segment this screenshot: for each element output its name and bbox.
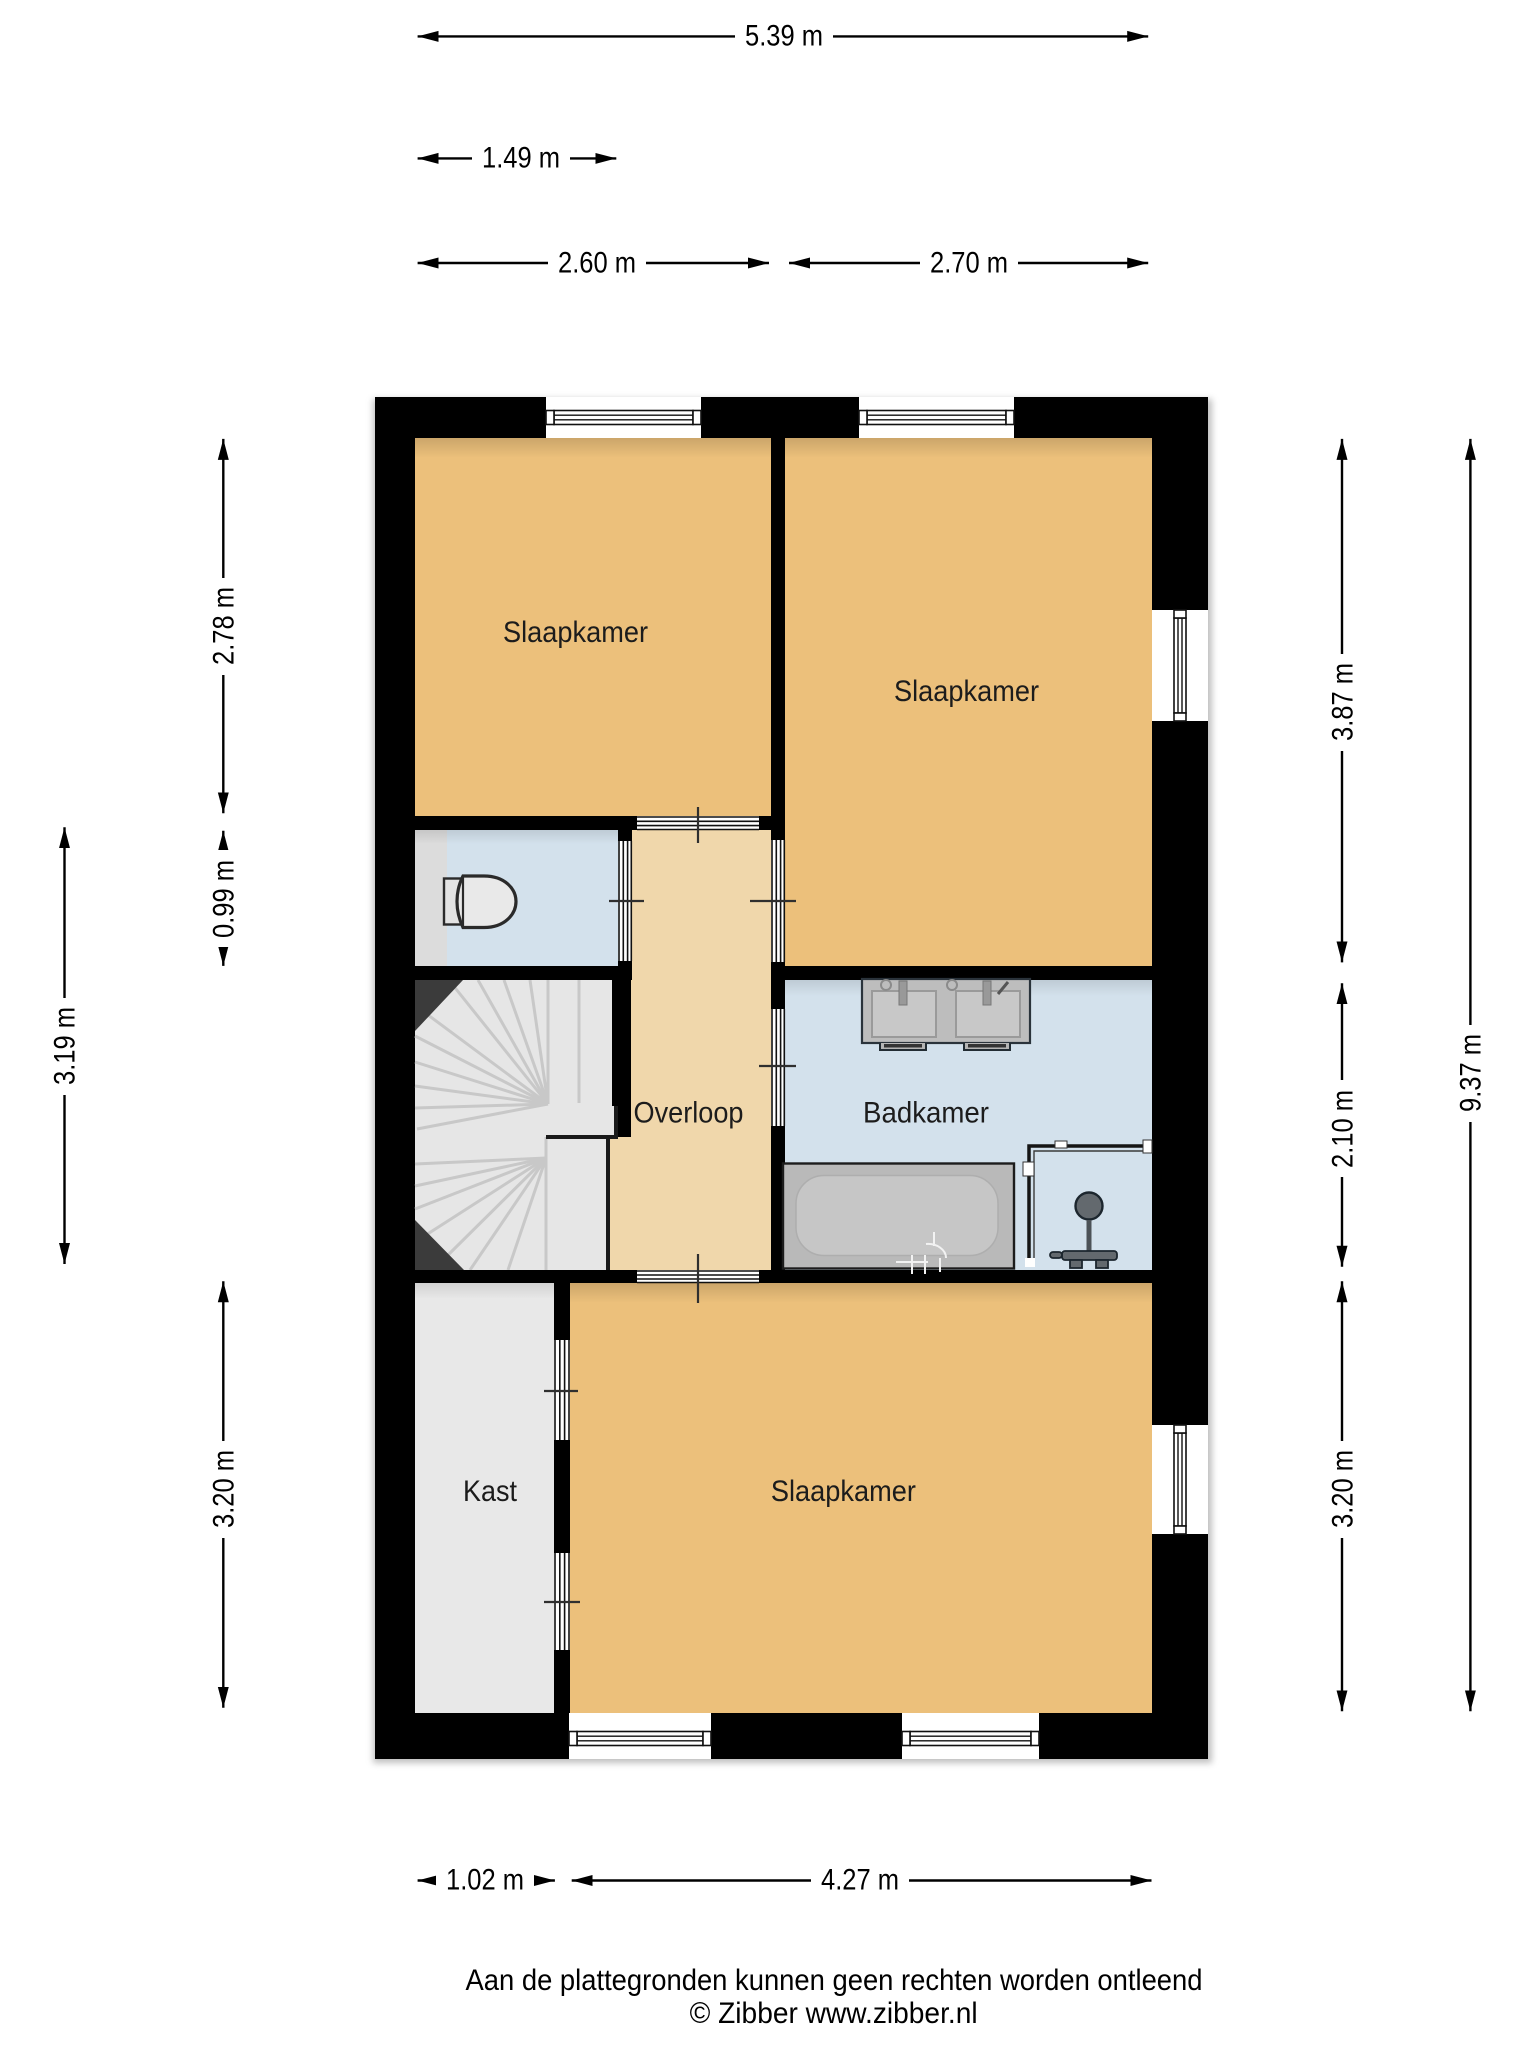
svg-text:Slaapkamer: Slaapkamer — [503, 616, 648, 649]
svg-text:9.37 m: 9.37 m — [1455, 1034, 1488, 1112]
svg-text:5.39 m: 5.39 m — [745, 20, 823, 53]
svg-text:Slaapkamer: Slaapkamer — [771, 1475, 916, 1508]
svg-text:0.99 m: 0.99 m — [208, 860, 241, 938]
svg-text:1.02 m: 1.02 m — [446, 1864, 524, 1897]
svg-text:4.27 m: 4.27 m — [821, 1864, 899, 1897]
svg-text:3.20 m: 3.20 m — [208, 1450, 241, 1528]
svg-text:1.49 m: 1.49 m — [482, 142, 560, 175]
svg-text:Slaapkamer: Slaapkamer — [894, 675, 1039, 708]
svg-text:2.70 m: 2.70 m — [930, 247, 1008, 280]
svg-text:2.78 m: 2.78 m — [208, 587, 241, 665]
svg-text:2.10 m: 2.10 m — [1327, 1090, 1360, 1168]
svg-text:2.60 m: 2.60 m — [558, 247, 636, 280]
svg-text:© Zibber www.zibber.nl: © Zibber www.zibber.nl — [690, 1997, 978, 2030]
svg-text:Badkamer: Badkamer — [863, 1096, 989, 1129]
svg-text:Aan de plattegronden kunnen ge: Aan de plattegronden kunnen geen rechten… — [466, 1964, 1203, 1997]
svg-text:3.19 m: 3.19 m — [49, 1007, 82, 1085]
svg-text:3.87 m: 3.87 m — [1327, 663, 1360, 741]
svg-text:Kast: Kast — [463, 1475, 518, 1508]
svg-text:Overloop: Overloop — [634, 1096, 744, 1129]
svg-text:3.20 m: 3.20 m — [1327, 1450, 1360, 1528]
